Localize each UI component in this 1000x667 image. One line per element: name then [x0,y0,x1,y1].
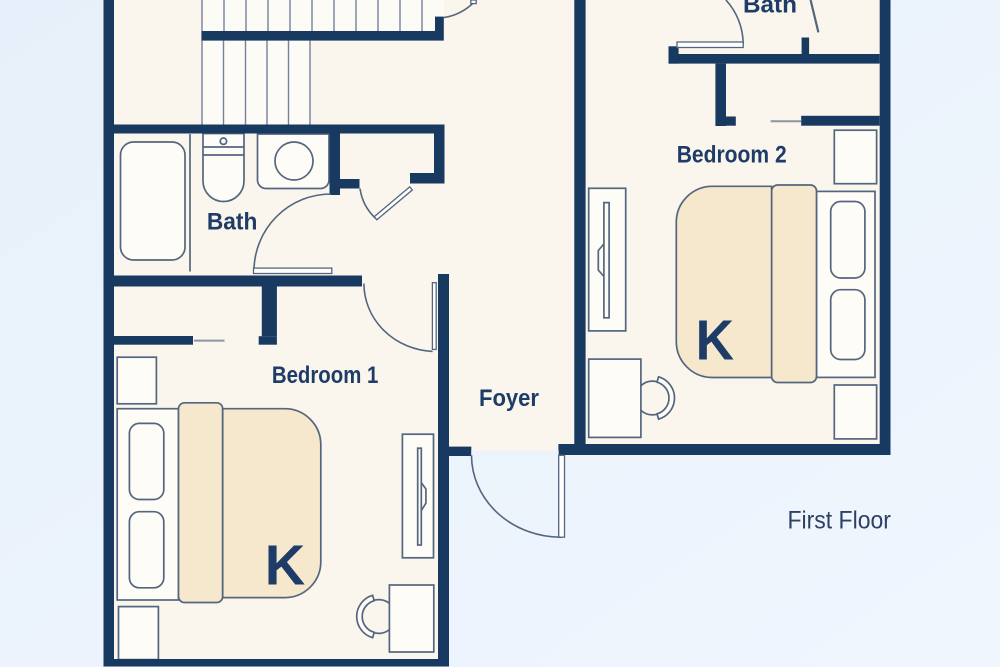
svg-text:K: K [696,309,734,373]
svg-text:First Floor: First Floor [787,507,891,535]
svg-text:Bath: Bath [207,208,258,235]
svg-text:Bedroom 2: Bedroom 2 [677,141,787,168]
svg-text:K: K [265,534,306,598]
svg-text:Bedroom 1: Bedroom 1 [272,362,378,389]
svg-text:Bath: Bath [743,0,797,19]
svg-text:Foyer: Foyer [479,385,539,412]
